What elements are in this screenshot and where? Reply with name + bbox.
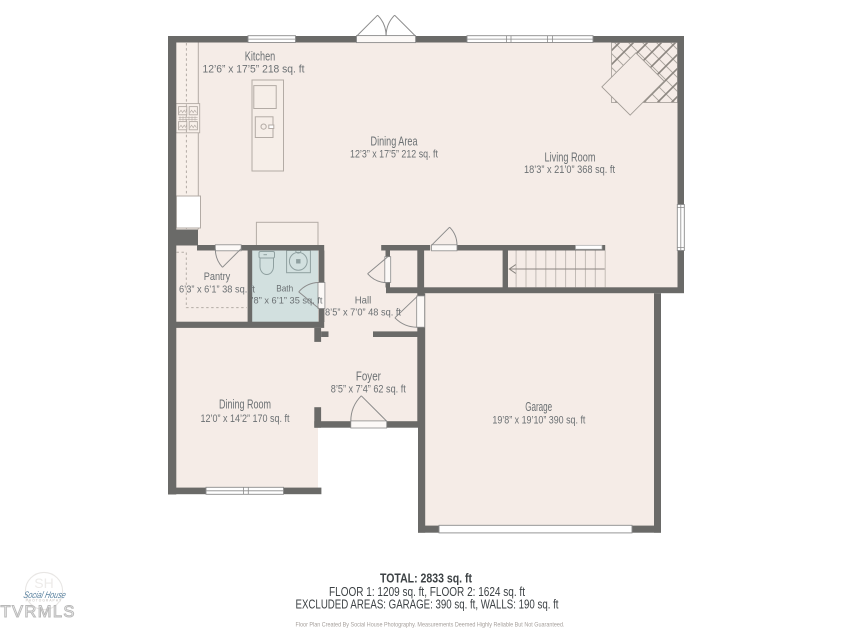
- svg-text:SH: SH: [34, 575, 53, 591]
- svg-text:Garage: Garage: [525, 400, 552, 414]
- svg-text:18’3” x 21’0” 368 sq. ft: 18’3” x 21’0” 368 sq. ft: [524, 164, 615, 176]
- svg-text:Bath: Bath: [276, 283, 293, 294]
- svg-text:Hall: Hall: [355, 295, 372, 307]
- svg-text:12’6” x 17’5” 218 sq. ft: 12’6” x 17’5” 218 sq. ft: [203, 63, 305, 75]
- svg-text:Living Room: Living Room: [545, 151, 596, 165]
- svg-text:8’5” x 7’0” 48 sq. ft: 8’5” x 7’0” 48 sq. ft: [325, 308, 401, 319]
- svg-text:19’8” x 19’10” 390 sq. ft: 19’8” x 19’10” 390 sq. ft: [492, 414, 585, 426]
- svg-text:Dining Room: Dining Room: [219, 398, 271, 412]
- svg-text:Dining Area: Dining Area: [371, 135, 418, 149]
- svg-text:TVRMLS: TVRMLS: [1, 603, 76, 621]
- svg-text:Floor Plan Created By Social H: Floor Plan Created By Social House Photo…: [296, 622, 565, 629]
- svg-text:PHOTOGRAPHY: PHOTOGRAPHY: [26, 599, 63, 603]
- svg-text:Pantry: Pantry: [204, 271, 231, 283]
- svg-text:6’3” x 6’1” 38 sq. ft: 6’3” x 6’1” 38 sq. ft: [179, 285, 255, 296]
- svg-text:’8” x 6’1” 35 sq. ft: ’8” x 6’1” 35 sq. ft: [252, 296, 323, 307]
- svg-text:Foyer: Foyer: [356, 370, 381, 384]
- svg-text:Kitchen: Kitchen: [245, 49, 276, 63]
- svg-text:EXCLUDED AREAS: GARAGE: 390 sq: EXCLUDED AREAS: GARAGE: 390 sq. ft, WALL…: [296, 597, 559, 612]
- svg-text:12’0” x 14’2” 170 sq. ft: 12’0” x 14’2” 170 sq. ft: [201, 413, 290, 425]
- svg-text:12’3” x 17’5” 212 sq. ft: 12’3” x 17’5” 212 sq. ft: [350, 149, 438, 161]
- svg-text:8’5” x 7’4” 62 sq. ft: 8’5” x 7’4” 62 sq. ft: [331, 384, 406, 396]
